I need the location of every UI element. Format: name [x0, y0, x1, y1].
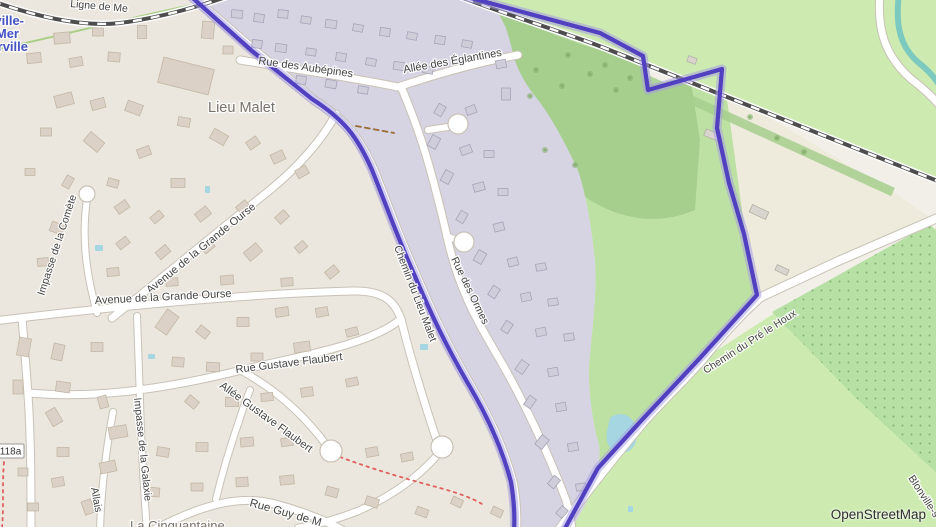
building [240, 437, 254, 447]
building [358, 86, 369, 94]
tree-icon-core [535, 69, 538, 72]
building [177, 117, 190, 128]
building [253, 13, 264, 22]
tree-icon-core [589, 73, 592, 76]
swimming-pool [95, 245, 103, 251]
tree-icon-core [615, 89, 618, 92]
building [236, 477, 249, 487]
building [306, 48, 317, 56]
building [172, 357, 185, 367]
building [352, 24, 363, 33]
building [567, 442, 578, 452]
building [138, 26, 147, 39]
building [555, 402, 566, 412]
building [564, 333, 575, 341]
building [461, 40, 472, 49]
tree-icon-core [561, 85, 564, 88]
building [69, 56, 83, 67]
building [55, 381, 70, 393]
building [379, 27, 390, 36]
building [325, 19, 337, 28]
building [18, 468, 28, 476]
swimming-pool [148, 354, 155, 359]
building [498, 189, 508, 196]
culdesac-circle [448, 114, 468, 134]
attribution-link[interactable]: OpenStreetMap [831, 507, 926, 522]
building [156, 447, 169, 458]
building [191, 483, 203, 491]
building [434, 35, 445, 44]
tree-icon-core [567, 54, 570, 57]
map-label: Lieu Malet [208, 100, 275, 116]
building [281, 278, 294, 287]
map-canvas[interactable]: Ligne de Meville-MerrvilleRue des Aubépi… [0, 0, 936, 527]
tree-icon-core [604, 64, 607, 67]
tree-icon-core [749, 116, 752, 119]
building [301, 16, 312, 24]
building [13, 380, 23, 394]
building [495, 59, 506, 69]
building [108, 52, 121, 62]
building [237, 318, 249, 327]
building [17, 337, 32, 357]
building [275, 43, 287, 52]
swimming-pool [628, 506, 633, 512]
culdesac-circle [431, 436, 453, 458]
badge-layer: 118a [0, 444, 24, 458]
building [520, 292, 531, 302]
building [223, 46, 233, 54]
building [335, 52, 346, 62]
building [278, 10, 289, 19]
building [535, 263, 546, 272]
swimming-pool [420, 344, 428, 350]
tree-icon-core [629, 77, 632, 80]
culdesac-circle [79, 186, 95, 202]
building [54, 32, 71, 44]
building [51, 477, 64, 488]
building [315, 307, 328, 318]
building [231, 10, 243, 19]
building [502, 88, 511, 100]
building [251, 353, 263, 361]
building [107, 267, 120, 276]
map-label: La Cinquantaine [130, 518, 225, 527]
road-ormes-stub-1 [428, 127, 448, 130]
building [535, 327, 546, 337]
road-ref-badge-text: 118a [0, 447, 22, 458]
building [108, 425, 128, 440]
tree-icon-core [776, 137, 779, 140]
building [365, 447, 378, 458]
building [300, 387, 313, 398]
building [57, 448, 69, 457]
building [406, 32, 417, 41]
building [293, 341, 310, 353]
building [28, 503, 39, 511]
building [275, 307, 289, 318]
building [548, 298, 559, 306]
culdesac-circle [320, 440, 342, 462]
building [201, 21, 214, 39]
map-label: rville [0, 39, 28, 54]
map-viewport[interactable]: Ligne de Meville-MerrvilleRue des Aubépi… [0, 0, 936, 527]
tree-icon-core [544, 149, 547, 152]
building [41, 128, 52, 136]
building [325, 79, 337, 89]
tree-icon-core [574, 164, 577, 167]
building [220, 275, 234, 285]
building [484, 151, 494, 158]
building [547, 367, 558, 377]
building [91, 343, 103, 352]
building [261, 392, 274, 401]
building [206, 362, 219, 372]
building [196, 443, 208, 452]
building [93, 28, 104, 36]
swimming-pool [205, 186, 210, 193]
building [25, 169, 35, 176]
building [280, 475, 295, 485]
building [27, 52, 42, 63]
building [365, 58, 376, 67]
building [171, 179, 185, 188]
tree-icon-core [529, 95, 532, 98]
culdesac-circle [454, 232, 474, 252]
tree-icon-core [803, 151, 806, 154]
